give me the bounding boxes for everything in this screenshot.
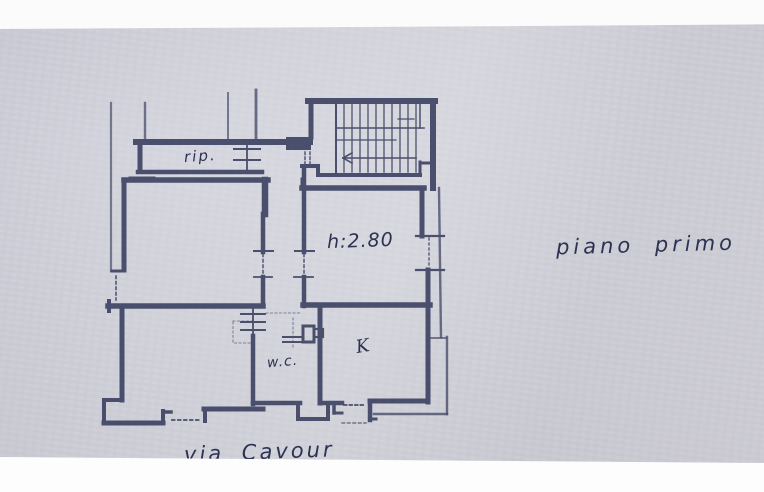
wc-room-label: w.c. — [266, 353, 298, 372]
kitchen-walls — [303, 305, 430, 423]
door-threshold-icon — [298, 404, 328, 419]
stair-direction-arrow-icon — [343, 153, 416, 163]
cadastral-floor-plan-photo: rip. h:2.80 w.c. K piano primo via Cavou… — [0, 0, 764, 492]
storage-room-label: rip. — [183, 146, 217, 166]
floor-note-label: piano primo — [556, 231, 737, 260]
lower-left-room-walls — [104, 301, 263, 423]
ceiling-height-label: h:2.80 — [327, 229, 394, 253]
left-room-walls — [112, 180, 273, 306]
main-room-walls — [294, 168, 444, 402]
stair-treads — [344, 104, 416, 172]
photo-top-margin — [0, 0, 764, 29]
storage-corridor-walls — [130, 142, 310, 178]
fixture-icon — [303, 326, 314, 342]
stairwell — [286, 101, 435, 188]
